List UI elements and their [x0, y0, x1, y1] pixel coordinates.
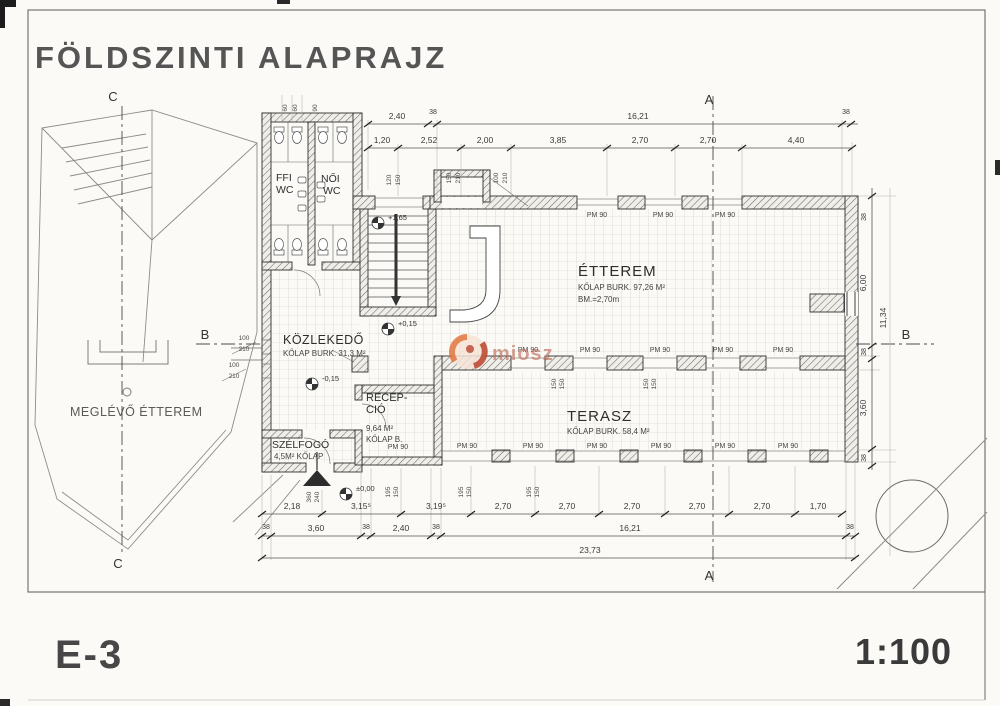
floorplan-svg: FÖLDSZINTI ALAPRAJZ MEGLÉVŐ ÉTTEREM	[0, 0, 1000, 706]
dim-label: 38	[842, 109, 850, 116]
window-label: PM 90	[650, 347, 670, 354]
dim-label: 120	[386, 174, 393, 185]
dim-label: 1,70	[810, 501, 827, 511]
room-label-terasz: TERASZ	[567, 408, 632, 425]
dim-label: 210	[502, 172, 509, 183]
dim-label: 150	[551, 378, 558, 389]
room-label-etterem: ÉTTEREM	[578, 263, 657, 280]
scale-label: 1:100	[855, 631, 952, 672]
dim-label: 2,70	[632, 135, 649, 145]
dim-label: 3,15⁵	[351, 501, 371, 511]
dim-label: 2,00	[477, 135, 494, 145]
dim-label: 3,60	[308, 523, 325, 533]
existing-room-label: MEGLÉVŐ ÉTTEREM	[70, 404, 203, 419]
dim-label: 2,70	[495, 501, 512, 511]
level-label: -0,15	[322, 374, 339, 383]
dim-label: 38	[861, 454, 868, 462]
dim-label: 2,40	[393, 523, 410, 533]
dim-label: 150	[643, 378, 650, 389]
window-label: PM 90	[715, 212, 735, 219]
room-label-ffi-wc-1: FFI	[276, 172, 292, 184]
window-label: PM 90	[388, 444, 408, 451]
dim-label: 100	[239, 335, 250, 342]
dim-label: 150	[466, 486, 473, 497]
dim-label: 2,70	[559, 501, 576, 511]
dim-label: 150	[559, 378, 566, 389]
dim-label: 38	[432, 524, 440, 531]
dim-label: 2,70	[700, 135, 717, 145]
dim-label: 38	[262, 524, 270, 531]
section-marker-b-right: B	[902, 327, 911, 342]
dim-label: 210	[229, 373, 240, 380]
room-label-szelfogo: SZÉLFOGÓ	[272, 438, 329, 451]
room-label-kozlekedo: KÖZLEKEDŐ	[283, 332, 364, 347]
dim-label: 100	[229, 362, 240, 369]
site-marks	[837, 438, 987, 589]
section-marker-c-top: C	[108, 89, 117, 104]
room-label-recepcio-2: CIÓ	[366, 403, 386, 416]
room-finish-recepcio: KŐLAP B.	[366, 435, 402, 444]
room-area-szelfogo: 4,5M² KŐLAP	[274, 452, 323, 461]
dim-label: 2,70	[754, 501, 771, 511]
window-label: PM 90	[778, 443, 798, 450]
dim-label: 1,20	[374, 135, 391, 145]
dim-label: 150	[393, 486, 400, 497]
dim-label: 3,19⁵	[426, 501, 446, 511]
window-label: PM 90	[457, 443, 477, 450]
dim-label: 240	[314, 491, 321, 502]
room-area-etterem: KŐLAP BURK. 97,26 M²	[578, 283, 665, 292]
sheet-number: E-3	[55, 633, 123, 677]
window-label: PM 90	[651, 443, 671, 450]
dim-chain-bottom: 2,18 3,15⁵ 3,19⁵ 2,70 2,70 2,70 2,70 2,7…	[258, 501, 859, 561]
dim-label: 2,70	[624, 501, 641, 511]
dim-label: 4,40	[788, 135, 805, 145]
dim-label: 16,21	[627, 111, 649, 121]
section-marker-b-left: B	[201, 327, 210, 342]
window-label: PM 90	[580, 347, 600, 354]
window-label: PM 90	[587, 443, 607, 450]
dim-label: 360	[306, 491, 313, 502]
level-label: +1,65	[388, 213, 407, 222]
dim-chain-top: 2,40 38 16,21 38 1,20 2,52 2,00 3,85 2,7…	[364, 109, 858, 151]
dim-label: 195	[458, 486, 465, 497]
stair-direction-arrow	[391, 296, 401, 306]
dim-label: 38	[429, 109, 437, 116]
dim-label: 6,00	[858, 274, 868, 291]
dim-label: 2,18	[284, 501, 301, 511]
window-label: PM 90	[773, 347, 793, 354]
room-label-recepcio-1: RECEP-	[366, 392, 408, 404]
section-marker-a-bottom: A	[705, 568, 714, 583]
dim-label: 150	[651, 378, 658, 389]
window-label: PM 90	[587, 212, 607, 219]
dim-label-right-total: 11,34	[878, 307, 888, 328]
room-label-noi-wc-1: NŐI	[321, 171, 340, 185]
dim-label: 60	[282, 104, 289, 112]
window-label: PM 90	[715, 443, 735, 450]
section-marker-c-bottom: C	[113, 556, 122, 571]
tree-circle	[876, 480, 948, 552]
dim-label: 16,21	[619, 523, 641, 533]
dim-label: 60	[292, 104, 299, 112]
window-label: PM 90	[713, 347, 733, 354]
room-height-etterem: BM.=2,70m	[578, 295, 619, 304]
watermark-text: miosz	[492, 343, 554, 365]
dim-label: 210	[455, 172, 462, 183]
dim-label: 100	[493, 172, 500, 183]
dim-label: 38	[861, 348, 868, 356]
dim-label: 150	[534, 486, 541, 497]
room-area-recepcio: 9,64 M²	[366, 424, 393, 433]
drawing-sheet: FÖLDSZINTI ALAPRAJZ MEGLÉVŐ ÉTTEREM	[0, 0, 1000, 706]
dim-label: 3,85	[550, 135, 567, 145]
existing-counter-shape	[88, 340, 168, 396]
dim-label: 2,40	[389, 111, 406, 121]
dim-label: 195	[526, 486, 533, 497]
dim-label: 150	[446, 172, 453, 183]
room-area-terasz: KŐLAP BURK. 58,4 M²	[567, 427, 650, 436]
dim-chain-right: 38 6,00 38 3,60 38 11,34	[858, 188, 888, 470]
window-label: PM 90	[523, 443, 543, 450]
dim-label: 38	[846, 524, 854, 531]
existing-building-outline	[35, 110, 300, 549]
room-label-noi-wc-2: WC	[323, 185, 341, 197]
dim-label: 195	[385, 486, 392, 497]
dim-label: 2,70	[689, 501, 706, 511]
room-label-ffi-wc-2: WC	[276, 184, 294, 196]
dim-label-total: 23,73	[579, 545, 601, 555]
dim-label: 210	[239, 346, 250, 353]
section-marker-a-top: A	[705, 92, 714, 107]
dim-label: 150	[395, 174, 402, 185]
dim-label: 3,60	[858, 399, 868, 416]
room-area-kozlekedo: KŐLAP BURK. 31,3 M²	[283, 349, 366, 358]
level-label: +0,15	[398, 319, 417, 328]
window-label: PM 90	[653, 212, 673, 219]
dim-label: 90	[312, 104, 319, 112]
dim-label: 2,52	[421, 135, 438, 145]
dim-label: 38	[861, 213, 868, 221]
dim-label: 38	[362, 524, 370, 531]
level-label: ±0,00	[356, 484, 375, 493]
page-title: FÖLDSZINTI ALAPRAJZ	[35, 40, 447, 75]
